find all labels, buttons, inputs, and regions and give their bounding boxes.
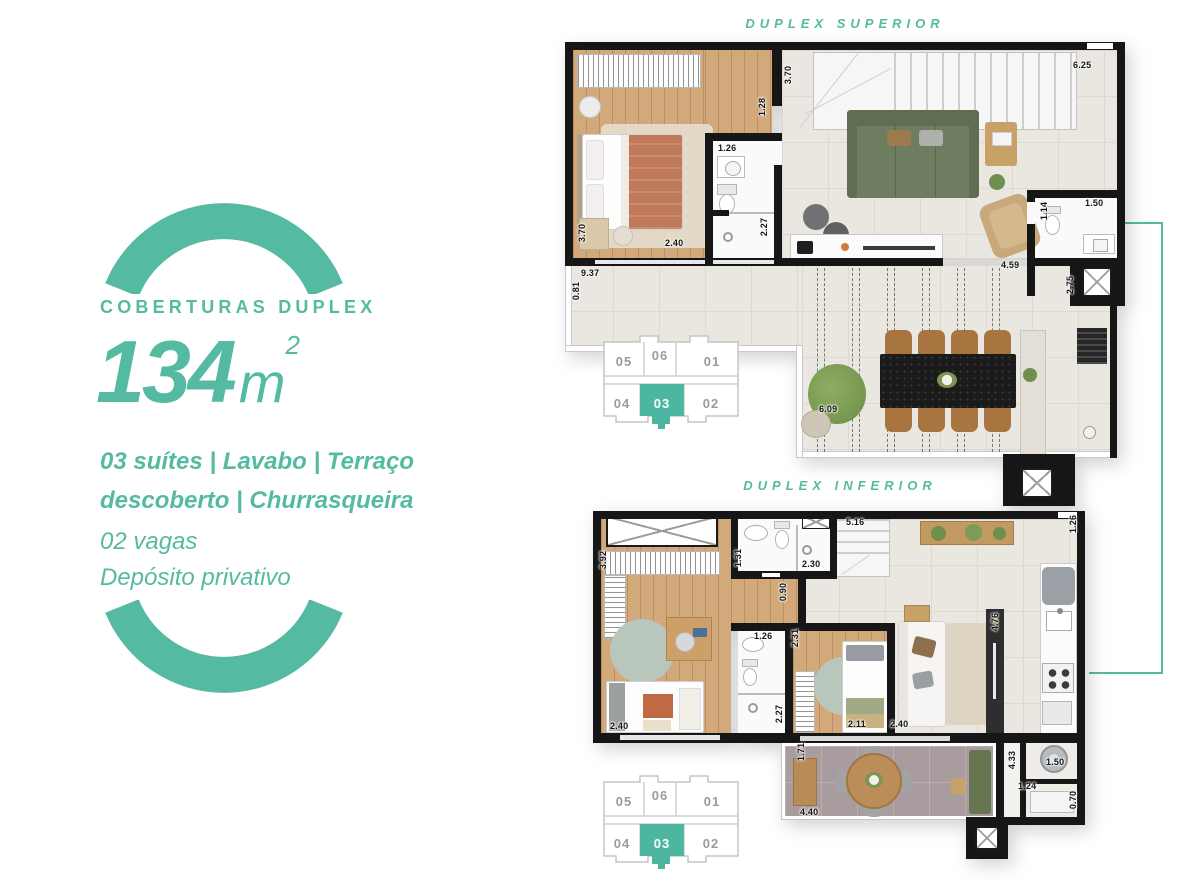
bracket-bottom-line bbox=[1089, 672, 1163, 674]
keyplan-unit-label: 01 bbox=[704, 794, 720, 809]
floorplan-superior: 3.70 1.28 6.25 1.26 2.40 3.70 2.27 4.59 … bbox=[565, 40, 1127, 510]
feature-deposito: Depósito privativo bbox=[100, 564, 291, 592]
window bbox=[620, 735, 720, 740]
dimension-label: 0.70 bbox=[1068, 791, 1078, 809]
kitchen-sink bbox=[1046, 611, 1072, 631]
sofa-back bbox=[847, 110, 979, 126]
features-line-1: 03 suítes | Lavabo | Terraço bbox=[100, 448, 414, 476]
brand-arc-top-icon bbox=[104, 198, 344, 294]
terrace-chair bbox=[984, 330, 1011, 356]
toilet-tank bbox=[742, 659, 758, 667]
wall bbox=[1117, 42, 1125, 266]
sofa-arm bbox=[847, 110, 857, 198]
brand-arc-bottom-icon bbox=[104, 600, 344, 696]
table-flowers bbox=[937, 372, 957, 388]
rug bbox=[610, 619, 674, 683]
console-table bbox=[920, 521, 1014, 545]
magazine bbox=[992, 132, 1012, 146]
shower-divider bbox=[796, 525, 798, 571]
keyplan-unit-label: 06 bbox=[652, 348, 668, 363]
wall bbox=[565, 42, 573, 266]
keyplan-unit-label-highlighted: 03 bbox=[654, 396, 670, 411]
laptop bbox=[693, 628, 707, 637]
wall bbox=[996, 735, 1004, 823]
decor-flower bbox=[841, 243, 849, 251]
winder-line bbox=[841, 555, 869, 575]
keyplan-unit-label: 05 bbox=[616, 354, 632, 369]
dimension-label: 4.33 bbox=[1007, 751, 1017, 769]
keyplan-superior: 05 06 01 04 03 02 bbox=[596, 330, 746, 434]
area-exponent: 2 bbox=[285, 330, 299, 360]
door-opening bbox=[762, 573, 780, 577]
window bbox=[595, 260, 775, 264]
dimension-label: 2.75 bbox=[1065, 276, 1075, 294]
features-line-2: descoberto | Churrasqueira bbox=[100, 487, 413, 515]
keyplan-unit-label: 06 bbox=[652, 788, 668, 803]
bed-double bbox=[577, 134, 683, 230]
elevator-cab bbox=[1082, 267, 1112, 297]
dimension-label: 6.25 bbox=[1073, 60, 1091, 70]
cooktop bbox=[797, 241, 813, 254]
terrace-chair bbox=[918, 330, 945, 356]
keyplan-unit-label: 04 bbox=[614, 836, 630, 851]
dimension-label: 2.31 bbox=[790, 629, 800, 647]
sink-basin bbox=[744, 525, 768, 541]
dimension-label: 0.90 bbox=[778, 583, 788, 601]
closet-rack bbox=[577, 54, 701, 88]
glass-door bbox=[800, 736, 950, 741]
terrace-chair bbox=[885, 406, 912, 432]
wall-niche bbox=[1087, 43, 1113, 49]
dimension-label: 4.59 bbox=[1001, 260, 1019, 270]
dimension-label: 1.28 bbox=[757, 98, 767, 116]
brochure-page: COBERTURAS DUPLEX 134m2 03 suítes | Lava… bbox=[0, 0, 1200, 887]
pillow bbox=[679, 688, 701, 730]
sideboard bbox=[793, 758, 817, 806]
dimension-label: 1.26 bbox=[1068, 515, 1078, 533]
blanket bbox=[629, 135, 682, 229]
keyplan-inferior: 05 06 01 04 03 02 bbox=[596, 770, 746, 874]
dimension-label: 2.11 bbox=[848, 719, 866, 729]
sofa-arm bbox=[969, 110, 979, 198]
door-opening bbox=[774, 141, 782, 165]
plant bbox=[931, 526, 946, 541]
dimension-label: 1.31 bbox=[733, 549, 743, 567]
fridge bbox=[1042, 567, 1075, 605]
keyplan-unit-label: 04 bbox=[614, 396, 630, 411]
wall bbox=[805, 258, 943, 266]
keyplan-unit-03-notch bbox=[658, 864, 665, 869]
elevator-cab bbox=[975, 826, 999, 850]
sofa-pillow bbox=[887, 130, 911, 146]
dimension-label: 2.40 bbox=[665, 238, 683, 248]
sofa-pillow bbox=[919, 130, 943, 146]
dimension-label: 1.24 bbox=[1018, 781, 1036, 791]
pillow bbox=[586, 140, 604, 180]
keyplan-unit-label: 02 bbox=[703, 836, 719, 851]
sofa-pillow bbox=[911, 636, 937, 659]
dimension-label: 6.09 bbox=[819, 404, 837, 414]
area-figure: 134m2 bbox=[96, 328, 300, 416]
wall bbox=[565, 42, 1125, 50]
wall bbox=[1077, 511, 1085, 823]
dimension-label: 9.37 bbox=[581, 268, 599, 278]
feature-vagas: 02 vagas bbox=[100, 528, 197, 556]
sink-basin bbox=[1093, 239, 1108, 252]
wall bbox=[798, 571, 806, 631]
wall bbox=[996, 817, 1085, 825]
plan-title-superior: DUPLEX SUPERIOR bbox=[565, 16, 1125, 31]
shower-head bbox=[802, 545, 812, 555]
toilet-tank bbox=[774, 521, 790, 529]
wall bbox=[830, 511, 837, 579]
table-flowers bbox=[865, 772, 883, 788]
closet-rack bbox=[795, 671, 815, 733]
keyplan-unit-label-highlighted: 03 bbox=[654, 836, 670, 851]
railing bbox=[796, 345, 803, 458]
dimension-label: 2.40 bbox=[610, 721, 628, 731]
elevator-cab bbox=[1021, 468, 1053, 498]
pillow bbox=[846, 645, 884, 661]
dimension-label: 3.70 bbox=[783, 66, 793, 84]
kitchen-counter bbox=[790, 234, 943, 260]
tv-screen bbox=[993, 643, 996, 699]
dimension-label: 2.27 bbox=[759, 218, 769, 236]
winder-line bbox=[806, 68, 891, 114]
railing bbox=[565, 265, 572, 349]
plant bbox=[1023, 368, 1037, 382]
wall bbox=[705, 133, 713, 266]
door-opening bbox=[1027, 202, 1035, 224]
entry-floor bbox=[705, 50, 772, 135]
desk-chair bbox=[675, 632, 695, 652]
wall bbox=[713, 210, 729, 216]
wall bbox=[1110, 304, 1117, 458]
wall bbox=[593, 511, 1085, 519]
outdoor-sofa bbox=[969, 750, 991, 814]
dimension-label: 2.27 bbox=[774, 705, 784, 723]
keyplan-unit-label: 02 bbox=[703, 396, 719, 411]
stove bbox=[1042, 663, 1074, 693]
stairs-winder bbox=[837, 554, 889, 576]
terrace-chair bbox=[918, 406, 945, 432]
blanket bbox=[846, 698, 884, 714]
bedside-table bbox=[579, 96, 601, 118]
wall bbox=[1027, 190, 1125, 198]
shower-head bbox=[748, 703, 758, 713]
barbecue-grill bbox=[1077, 328, 1107, 364]
plant-pot bbox=[801, 410, 831, 438]
dimension-label: 4.76 bbox=[990, 613, 1000, 631]
terrace-chair bbox=[951, 330, 978, 356]
plant bbox=[993, 527, 1006, 540]
plant bbox=[989, 174, 1005, 190]
dimension-label: 1.50 bbox=[1046, 757, 1064, 767]
shower-divider bbox=[738, 693, 785, 695]
plant bbox=[965, 524, 982, 541]
appliance bbox=[1042, 701, 1072, 725]
shower-divider bbox=[729, 212, 774, 214]
side-table bbox=[904, 605, 930, 622]
sofa-back bbox=[899, 622, 908, 726]
wall bbox=[1027, 266, 1035, 296]
vanity bbox=[717, 156, 745, 178]
pergola-line bbox=[859, 268, 860, 452]
brand-tagline: COBERTURAS DUPLEX bbox=[100, 297, 376, 318]
keyplan-unit-03-notch bbox=[658, 424, 665, 429]
blanket bbox=[643, 694, 673, 718]
dimension-label: 2.40 bbox=[890, 719, 908, 729]
pillow bbox=[643, 720, 671, 731]
wall bbox=[731, 571, 837, 579]
toilet-bowl bbox=[743, 668, 757, 686]
dimension-label: 0.81 bbox=[571, 282, 581, 300]
area-number: 134 bbox=[96, 322, 234, 421]
stairs bbox=[836, 519, 890, 577]
terrace-chair bbox=[951, 406, 978, 432]
dimension-label: 4.40 bbox=[800, 807, 818, 817]
dimension-label: 1.71 bbox=[796, 743, 806, 761]
sofa bbox=[847, 110, 979, 198]
area-unit: m bbox=[239, 351, 286, 414]
burners bbox=[1046, 667, 1072, 691]
knit-pouf bbox=[613, 226, 633, 246]
terrace-chair bbox=[885, 330, 912, 356]
closet-rack bbox=[604, 551, 720, 575]
keyplan-unit-label: 01 bbox=[704, 354, 720, 369]
keyplan-unit-label: 05 bbox=[616, 794, 632, 809]
rug bbox=[946, 623, 988, 725]
dimension-label: 3.70 bbox=[577, 224, 587, 242]
armchair-cushion bbox=[987, 201, 1033, 250]
side-table bbox=[951, 778, 965, 794]
sheet-fold bbox=[621, 135, 629, 229]
wall bbox=[772, 42, 782, 106]
terrace-chair bbox=[984, 406, 1011, 432]
toilet bbox=[717, 184, 735, 212]
sink-basin bbox=[725, 161, 741, 176]
dimension-label: 1.50 bbox=[1085, 198, 1103, 208]
dimension-label: 1.26 bbox=[718, 143, 736, 153]
bracket-top-line bbox=[1125, 222, 1163, 224]
faucet bbox=[1057, 608, 1063, 614]
pergola-line bbox=[852, 268, 853, 452]
wall bbox=[593, 511, 601, 743]
dimension-label: 3.92 bbox=[598, 551, 608, 569]
toilet-bowl bbox=[775, 530, 789, 549]
terrace-counter bbox=[1020, 330, 1046, 456]
dimension-label: 1.14 bbox=[1039, 202, 1049, 220]
sofa-pillow bbox=[912, 670, 934, 689]
dimension-label: 2.30 bbox=[802, 559, 820, 569]
wall bbox=[705, 133, 782, 141]
counter-shelf bbox=[863, 246, 935, 250]
vanity bbox=[1083, 234, 1115, 254]
bracket-vertical-line bbox=[1161, 222, 1163, 674]
shower-head bbox=[723, 232, 733, 242]
dimension-label: 1.26 bbox=[754, 631, 772, 641]
desk bbox=[666, 617, 712, 661]
wardrobe bbox=[606, 515, 718, 547]
sofa bbox=[898, 621, 946, 727]
floor-drain bbox=[1083, 426, 1096, 439]
dimension-label: 5.16 bbox=[846, 517, 864, 527]
side-table bbox=[985, 122, 1017, 166]
wall bbox=[785, 623, 895, 631]
